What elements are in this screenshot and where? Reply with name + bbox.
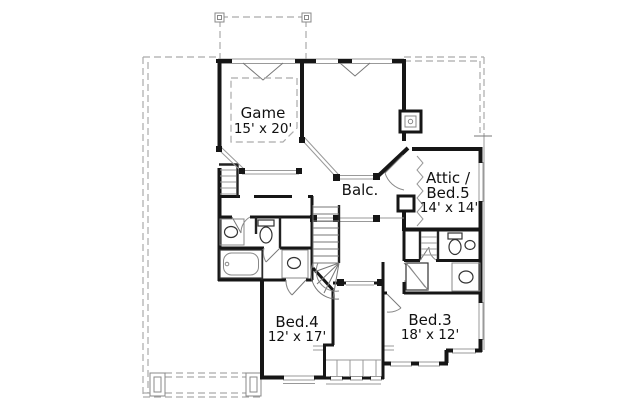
chimney-box — [400, 111, 421, 132]
sink-icon — [465, 241, 475, 250]
toilet-icon — [448, 233, 462, 255]
balcony-label: Balc. — [342, 181, 379, 199]
closet-shelves — [220, 170, 236, 194]
vanity-sink-icon — [452, 263, 480, 291]
bed4-dims: 12' x 17' — [268, 329, 326, 345]
floor-plan-drawing: Game 15' x 20' Balc. Attic / Bed.5 14' x… — [0, 0, 620, 415]
vanity-sink-icon — [282, 250, 308, 278]
bed3-dims: 18' x 12' — [401, 327, 459, 343]
shower-icon — [406, 263, 428, 290]
attic-bed5-dims: 14' x 14' — [420, 200, 478, 216]
toilet-icon — [258, 220, 274, 243]
game-room-dims: 15' x 20' — [234, 121, 292, 137]
bathtub-icon — [220, 250, 262, 278]
closet-shelves — [421, 237, 437, 255]
floor-plan-page: Game 15' x 20' Balc. Attic / Bed.5 14' x… — [0, 0, 620, 415]
game-room-label: Game — [241, 104, 286, 122]
